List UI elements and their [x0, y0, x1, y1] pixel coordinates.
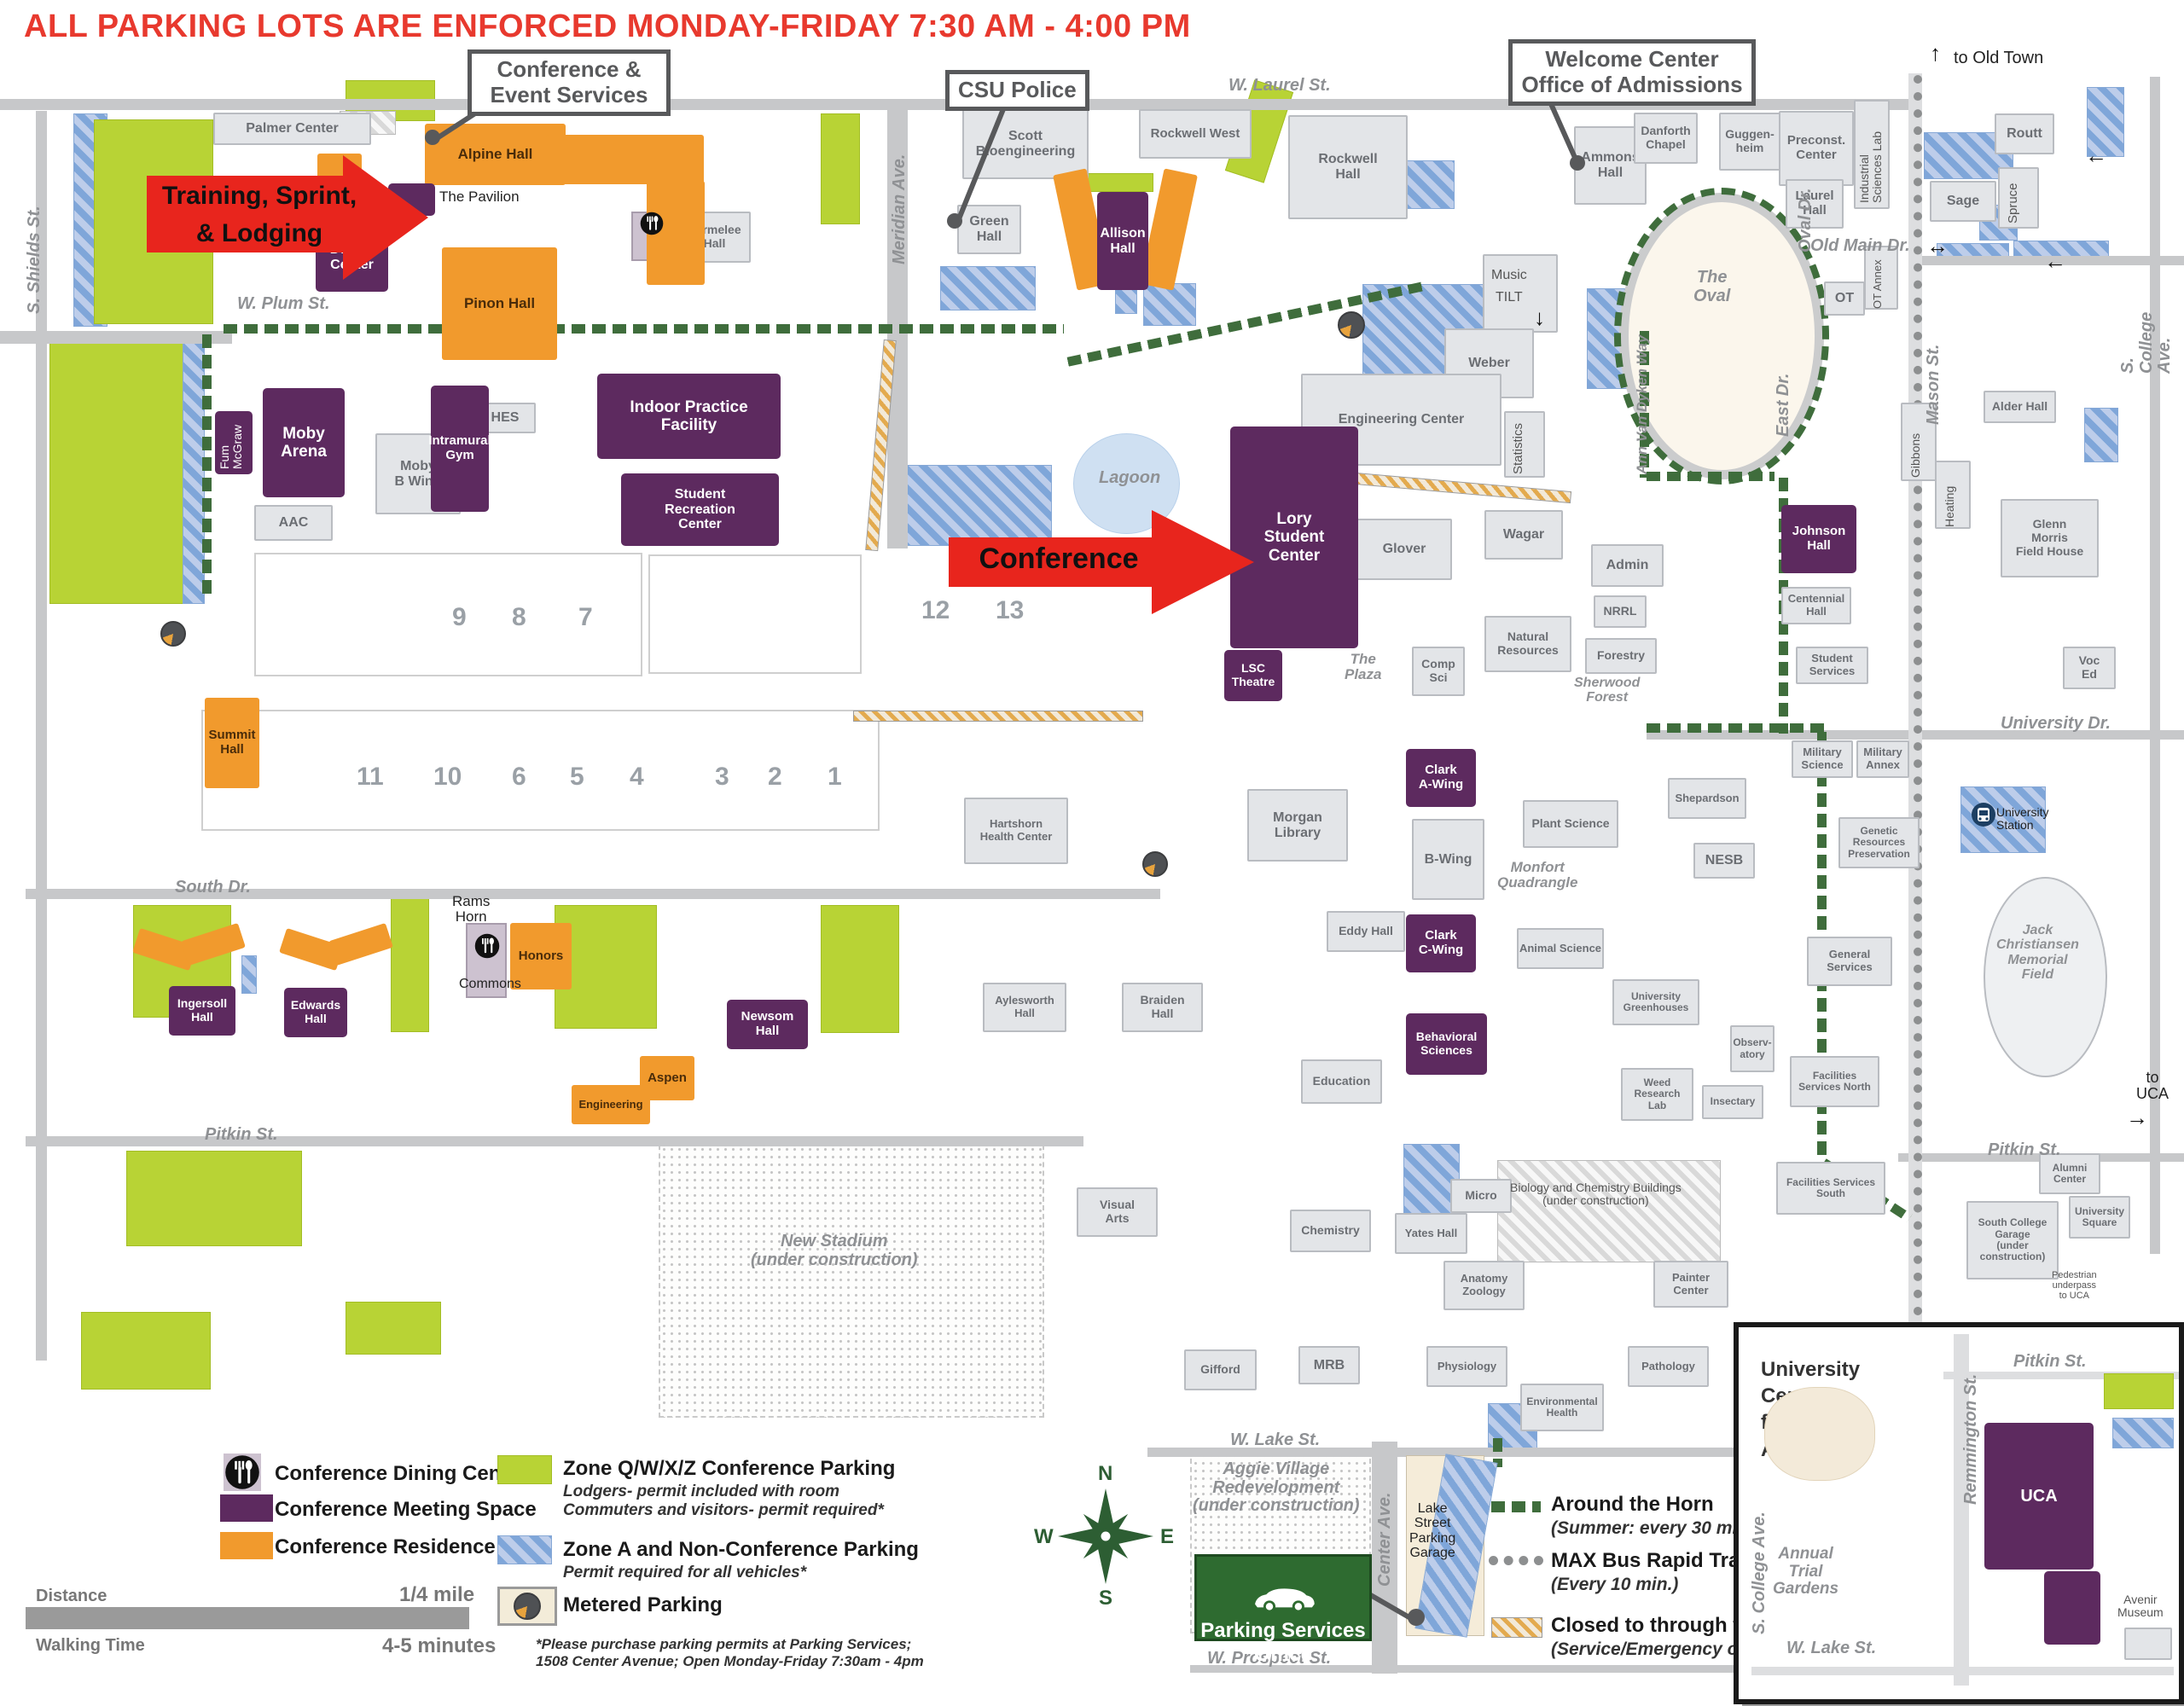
pitkin-st: Pitkin St. [205, 1126, 278, 1145]
preconst-center: Preconst. Center [1779, 111, 1854, 186]
lagoon: Lagoon [1099, 469, 1160, 488]
distance-value: 1/4 mile [399, 1583, 474, 1607]
metered-parking-icon [1142, 851, 1168, 877]
legend-zonea-sub: Permit required for all vehicles* [563, 1564, 806, 1582]
engineering: Engineering [572, 1085, 650, 1124]
newsom-hall: Newsom Hall [727, 1000, 808, 1049]
observ-atory: Observ- atory [1730, 1025, 1774, 1072]
legend-zoneq-swatch [497, 1455, 552, 1484]
legend-zonea-title: Zone A and Non-Conference Parking [563, 1538, 919, 1562]
south-dr: South Dr. [175, 879, 251, 897]
sherwood-forest: Sherwood Forest [1574, 676, 1640, 705]
rockwell-hall: Rockwell Hall [1288, 115, 1408, 219]
voc-ed: Voc Ed [2063, 647, 2116, 689]
bus-station-icon [1971, 802, 1996, 827]
avenir-museum: Avenir Museum [2117, 1593, 2164, 1619]
compass-s: S [1099, 1587, 1112, 1610]
route-60 [1647, 472, 1774, 481]
student-services: Student Services [1796, 647, 1868, 684]
w-lake-st: W. Lake St. [1786, 1639, 1876, 1658]
legend-zonea-swatch [497, 1535, 552, 1564]
forestry: Forestry [1585, 638, 1657, 674]
mason-st: Mason St. [1925, 345, 1943, 425]
legend-horn-title: Around the Horn [1551, 1493, 1714, 1517]
allison-hall: Allison Hall [1097, 192, 1148, 290]
gz-9 [391, 896, 429, 1032]
box-38 [648, 554, 862, 674]
lsc-theatre: LSC Theatre [1224, 650, 1282, 701]
o-147 [546, 135, 704, 184]
tan-3 [1764, 1387, 1875, 1481]
distance-scale-bar [26, 1607, 469, 1629]
bz-15 [940, 266, 1036, 310]
11: 11 [357, 763, 384, 791]
painter-center: Painter Center [1653, 1261, 1728, 1308]
pitkin-st: Pitkin St. [1988, 1141, 2061, 1160]
spruce: Spruce [2007, 183, 2020, 223]
conference-arrow-label: Conference [961, 543, 1157, 576]
ingersoll-hall: Ingersoll Hall [169, 986, 235, 1036]
music: Music [1491, 268, 1527, 282]
walking-time-label: Walking Time [36, 1636, 145, 1656]
braiden-hall: Braiden Hall [1122, 983, 1203, 1032]
oval-dr: Oval Dr. [1797, 188, 1815, 252]
edwards-hall: Edwards Hall [284, 988, 347, 1037]
the-pavilion: The Pavilion [439, 189, 520, 205]
intramural-gym: Intramural Gym [431, 386, 489, 512]
dz-32 [659, 1136, 1044, 1418]
8: 8 [512, 604, 526, 631]
biology-and-chemistry-buildings-under-construction: Biology and Chemistry Buildings (under c… [1510, 1181, 1682, 1207]
bz-27 [2084, 408, 2118, 462]
3: 3 [715, 763, 729, 791]
gz-11 [821, 905, 899, 1033]
environmental-health: Environmental Health [1520, 1384, 1604, 1431]
hartshorn-health-center: Hartshorn Health Center [964, 798, 1068, 864]
gifford: Gifford [1184, 1349, 1257, 1390]
1: 1 [828, 763, 842, 791]
: ↑ [1930, 41, 1941, 65]
genetic-resources-preservation: Genetic Resources Preservation [1838, 817, 1920, 868]
s-college-ave: S. College Ave. [1751, 1512, 1769, 1634]
legend-meeting-swatch [220, 1494, 273, 1522]
gz-12 [346, 1302, 441, 1355]
university-station: University Station [1996, 806, 2048, 832]
parking-office-label: Parking Services Office [1197, 1619, 1369, 1668]
statistics: Statistics [1512, 423, 1525, 474]
rh-43 [26, 1136, 1083, 1146]
the-oval: The Oval [1693, 269, 1730, 305]
route-58 [224, 324, 1064, 334]
rh-41 [0, 331, 232, 344]
nesb: NESB [1693, 843, 1755, 879]
p-7 [2044, 1571, 2100, 1645]
the-plaza: The Plaza [1345, 652, 1381, 683]
uca: UCA [1984, 1423, 2094, 1570]
clark-a-wing: Clark A-Wing [1406, 749, 1476, 807]
dining-icon [474, 933, 500, 959]
g-8 [2124, 1628, 2172, 1660]
9: 9 [452, 604, 467, 631]
: ↓ [1534, 305, 1545, 329]
parking-services-office: Parking Services Office [1194, 1554, 1372, 1641]
ces-dot [425, 130, 440, 145]
s-college-ave: S. College Ave. [2119, 309, 2175, 374]
micro: Micro [1450, 1179, 1512, 1213]
industrial-sciences-lab: Industrial Sciences Lab [1858, 131, 1884, 203]
fum-mcgraw: Fum McGraw [218, 425, 244, 469]
old-main-dr: Old Main Dr. [1810, 237, 1910, 256]
anatomy-zoology: Anatomy Zoology [1443, 1261, 1525, 1310]
education: Education [1301, 1059, 1382, 1104]
university-greenhouses: University Greenhouses [1612, 979, 1699, 1025]
: ↔ [1926, 234, 1949, 258]
legend-zoneq-sub: Lodgers- permit included with room Commu… [563, 1483, 884, 1520]
remmington-st: Remmington St. [1962, 1374, 1981, 1505]
nrrl: NRRL [1594, 595, 1647, 628]
routt: Routt [1995, 113, 2054, 154]
military-annex: Military Annex [1856, 740, 1909, 778]
: ← [2085, 143, 2107, 167]
east-dr: East Dr. [1774, 374, 1793, 437]
aac: AAC [254, 505, 333, 541]
indoor-practice-facility: Indoor Practice Facility [597, 374, 781, 459]
legend-closed-swatch [1491, 1617, 1542, 1638]
palmer-center: Palmer Center [213, 113, 371, 145]
legend-horn-swatch [1491, 1501, 1541, 1512]
johnson-hall: Johnson Hall [1781, 505, 1856, 573]
visual-arts: Visual Arts [1077, 1187, 1158, 1237]
gibbons: Gibbons [1909, 433, 1922, 478]
pinon-hall: Pinon Hall [442, 247, 557, 360]
dining-icon [224, 1454, 261, 1491]
w-laurel-st: W. Laurel St. [1228, 77, 1331, 96]
compass-n: N [1098, 1462, 1112, 1486]
s-shields-st: S. Shields St. [26, 206, 44, 314]
pedestrian-underpass-to-uca: Pedestrian underpass to UCA [2052, 1271, 2097, 1302]
guggen-heim: Guggen- heim [1719, 113, 1780, 171]
legend-max-swatch [1489, 1556, 1543, 1575]
bz-5 [2112, 1418, 2174, 1448]
gz-8 [821, 113, 860, 224]
uca-inset: University Center for the Arts UCAPitkin… [1734, 1322, 2184, 1704]
gz-6 [81, 1312, 211, 1390]
facilities-services-north: Facilities Services North [1790, 1056, 1879, 1107]
callout-csu-police: CSU Police [945, 70, 1089, 111]
distance-label: Distance [36, 1587, 107, 1606]
gz-4 [2104, 1373, 2174, 1409]
callout-conference-event-services: Conference & Event Services [468, 49, 671, 116]
metered-parking-icon [1338, 311, 1365, 339]
comp-sci: Comp Sci [1412, 647, 1465, 696]
legend-metered-title: Metered Parking [563, 1593, 723, 1617]
pathology: Pathology [1628, 1346, 1709, 1387]
rl-2 [1751, 1667, 2174, 1675]
admin: Admin [1591, 544, 1664, 587]
7: 7 [578, 604, 593, 631]
gz-2 [49, 341, 184, 604]
legend-zoneq-title: Zone Q/W/X/Z Conference Parking [563, 1457, 895, 1481]
pitkin-st: Pitkin St. [2013, 1353, 2087, 1372]
car-icon [1246, 1585, 1320, 1612]
rockwell-west: Rockwell West [1139, 109, 1252, 159]
legend-residence-swatch [220, 1532, 273, 1559]
cz-56 [853, 711, 1143, 722]
12: 12 [921, 597, 950, 624]
monfort-quadrangle: Monfort Quadrangle [1497, 860, 1577, 891]
routev-62 [202, 334, 212, 599]
wagar: Wagar [1484, 510, 1563, 560]
south-college-garage-under-construction: South College Garage (under construction… [1966, 1201, 2059, 1279]
commons: Commons [459, 977, 521, 991]
yates-hall: Yates Hall [1395, 1213, 1467, 1254]
training-arrow: Training, Sprint, & Lodging [147, 155, 430, 280]
rams-horn: Rams Horn [452, 894, 490, 926]
legend-metered-swatch [497, 1587, 557, 1626]
behavioral-sciences: Behavioral Sciences [1406, 1013, 1487, 1075]
morgan-library: Morgan Library [1247, 789, 1348, 862]
alder-hall: Alder Hall [1984, 391, 2056, 423]
moby-arena: Moby Arena [263, 388, 345, 497]
b-wing: B-Wing [1412, 819, 1484, 900]
danforth-chapel: Danforth Chapel [1634, 113, 1698, 164]
legend-horn-sub: (Summer: every 30 min.) [1551, 1518, 1759, 1539]
jack-christiansen-memorial-field: Jack Christiansen Memorial Field [1996, 923, 2079, 982]
police-dot [947, 213, 962, 229]
animal-science: Animal Science [1517, 928, 1604, 969]
gz-5 [126, 1151, 302, 1246]
hz-33 [1497, 1160, 1721, 1262]
welcome-dot [1570, 155, 1585, 171]
legend-max-sub: (Every 10 min.) [1551, 1575, 1678, 1595]
new-stadium-under-construction: New Stadium (under construction) [751, 1233, 918, 1269]
6: 6 [512, 763, 526, 791]
sage: Sage [1930, 181, 1996, 222]
route-61 [1647, 723, 1830, 733]
4: 4 [630, 763, 644, 791]
callout-welcome-center: Welcome Center Office of Admissions [1508, 39, 1756, 106]
university-square: University Square [2069, 1196, 2130, 1239]
compass-rose [1058, 1488, 1153, 1588]
legend-meeting-label: Conference Meeting Space [275, 1498, 537, 1522]
lake-street-parking-garage: Lake Street Parking Garage [1409, 1501, 1455, 1560]
5: 5 [570, 763, 584, 791]
ann-van-dyken-way: Ann Van Dyken Way [1635, 335, 1650, 474]
w-plum-st: W. Plum St. [237, 295, 330, 314]
to-uca: to UCA [2136, 1070, 2169, 1103]
mrb: MRB [1298, 1346, 1360, 1384]
walking-time-value: 4-5 minutes [382, 1634, 496, 1658]
maxv-68 [1914, 75, 1922, 1401]
university-dr: University Dr. [2001, 715, 2111, 734]
dining-icon [640, 212, 664, 235]
annual-trial-gardens: Annual Trial Gardens [1773, 1546, 1838, 1599]
bz-30 [241, 955, 257, 994]
training-arrow-label: Training, Sprint, & Lodging [148, 177, 370, 252]
ot: OT [1824, 281, 1865, 316]
aylesworth-hall: Aylesworth Hall [983, 983, 1066, 1032]
w-lake-st: W. Lake St. [1230, 1431, 1320, 1450]
parking-office-dot [1408, 1609, 1425, 1626]
green-hall: Green Hall [957, 205, 1021, 254]
10: 10 [433, 763, 462, 791]
o-158 [328, 923, 393, 966]
summit-hall: Summit Hall [205, 698, 259, 788]
clark-c-wing: Clark C-Wing [1406, 914, 1476, 972]
legend-dining-label: Conference Dining Center [275, 1462, 527, 1486]
ot-annex: OT Annex [1872, 259, 1884, 309]
metered-parking-icon [160, 621, 186, 647]
plant-science: Plant Science [1523, 800, 1618, 848]
student-recreation-center: Student Recreation Center [621, 473, 779, 546]
centennial-hall: Centennial Hall [1781, 587, 1851, 624]
tilt: TILT [1496, 290, 1523, 305]
aggie-village-redevelopment-under-construction: Aggie Village Redevelopment (under const… [1193, 1460, 1360, 1516]
compass-w: W [1034, 1525, 1054, 1549]
physiology: Physiology [1426, 1346, 1507, 1387]
eddy-hall: Eddy Hall [1327, 911, 1405, 952]
conference-arrow-head [1152, 510, 1254, 614]
natural-resources: Natural Resources [1484, 616, 1571, 672]
glover: Glover [1356, 519, 1452, 580]
meridian-ave: Meridian Ave. [891, 154, 909, 264]
: → [2126, 1105, 2148, 1129]
campus-map: ALL PARKING LOTS ARE ENFORCED MONDAY-FRI… [0, 0, 2184, 1706]
glenn-morris-field-house: Glenn Morris Field House [2001, 499, 2099, 577]
center-ave: Center Ave. [1376, 1493, 1395, 1587]
insectary: Insectary [1702, 1085, 1763, 1119]
general-services: General Services [1807, 937, 1892, 986]
2: 2 [768, 763, 782, 791]
military-science: Military Science [1792, 740, 1853, 778]
chemistry: Chemistry [1290, 1210, 1371, 1252]
heating: Heating [1943, 486, 1956, 527]
legend-footnote: *Please purchase parking permits at Park… [536, 1636, 924, 1670]
: ← [2044, 249, 2066, 273]
weed-research-lab: Weed Research Lab [1621, 1068, 1693, 1121]
shepardson: Shepardson [1668, 778, 1746, 819]
to-old-town: to Old Town [1954, 49, 2043, 68]
compass-e: E [1160, 1525, 1174, 1549]
conference-arrow: Conference [949, 510, 1256, 614]
page-title: ALL PARKING LOTS ARE ENFORCED MONDAY-FRI… [24, 9, 1191, 45]
facilities-services-south: Facilities Services South [1776, 1162, 1885, 1215]
